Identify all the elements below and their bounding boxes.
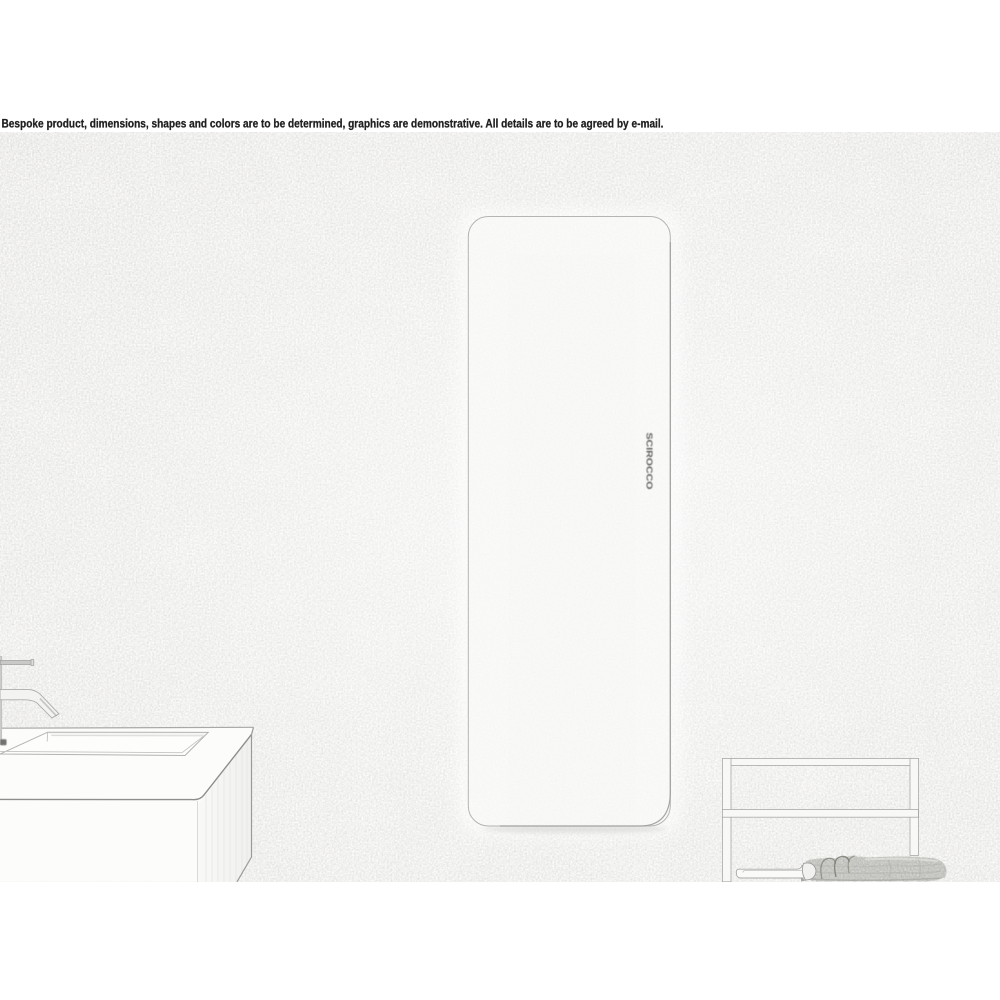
svg-text:SCIROCCO: SCIROCCO	[645, 433, 655, 490]
svg-text:Bespoke product, dimensions, s: Bespoke product, dimensions, shapes and …	[2, 119, 664, 131]
